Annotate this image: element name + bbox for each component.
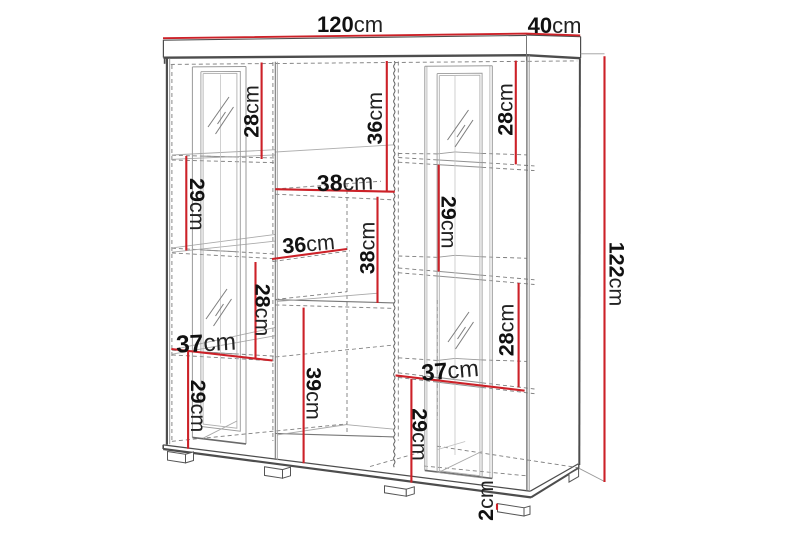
svg-text:29cm: 29cm — [186, 380, 210, 433]
svg-text:29cm: 29cm — [436, 196, 460, 249]
svg-text:2cm: 2cm — [474, 480, 498, 521]
svg-text:36cm: 36cm — [281, 230, 335, 258]
svg-text:122cm: 122cm — [604, 242, 628, 307]
svg-text:37cm: 37cm — [175, 329, 236, 359]
svg-text:40cm: 40cm — [528, 13, 582, 38]
svg-text:28cm: 28cm — [240, 85, 264, 138]
svg-text:37cm: 37cm — [420, 355, 480, 386]
svg-text:29cm: 29cm — [408, 408, 432, 461]
svg-text:36cm: 36cm — [363, 92, 387, 145]
svg-text:120cm: 120cm — [317, 12, 383, 37]
svg-text:28cm: 28cm — [250, 284, 274, 337]
svg-text:28cm: 28cm — [495, 304, 519, 357]
svg-text:39cm: 39cm — [302, 367, 326, 420]
svg-text:29cm: 29cm — [185, 178, 209, 231]
svg-text:28cm: 28cm — [493, 83, 517, 136]
svg-text:38cm: 38cm — [356, 222, 380, 275]
svg-text:38cm: 38cm — [316, 168, 373, 196]
